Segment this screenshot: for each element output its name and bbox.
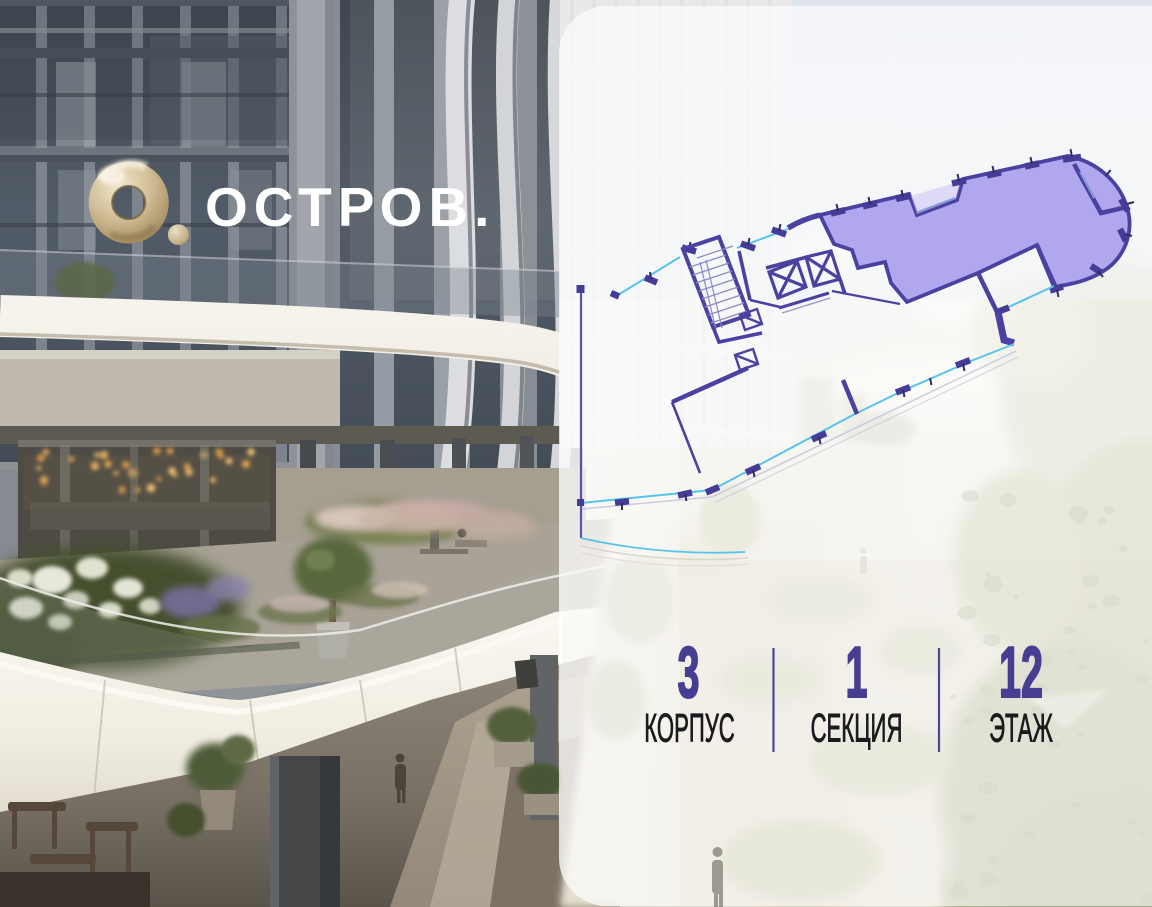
svg-text:КОРПУС: КОРПУС	[644, 706, 734, 750]
svg-text:ОСТРОВ.: ОСТРОВ.	[205, 176, 495, 238]
svg-text:1: 1	[845, 633, 867, 714]
svg-text:СЕКЦИЯ: СЕКЦИЯ	[811, 706, 903, 750]
svg-text:3: 3	[677, 633, 699, 714]
svg-text:ЭТАЖ: ЭТАЖ	[989, 706, 1053, 750]
svg-text:12: 12	[999, 633, 1043, 714]
